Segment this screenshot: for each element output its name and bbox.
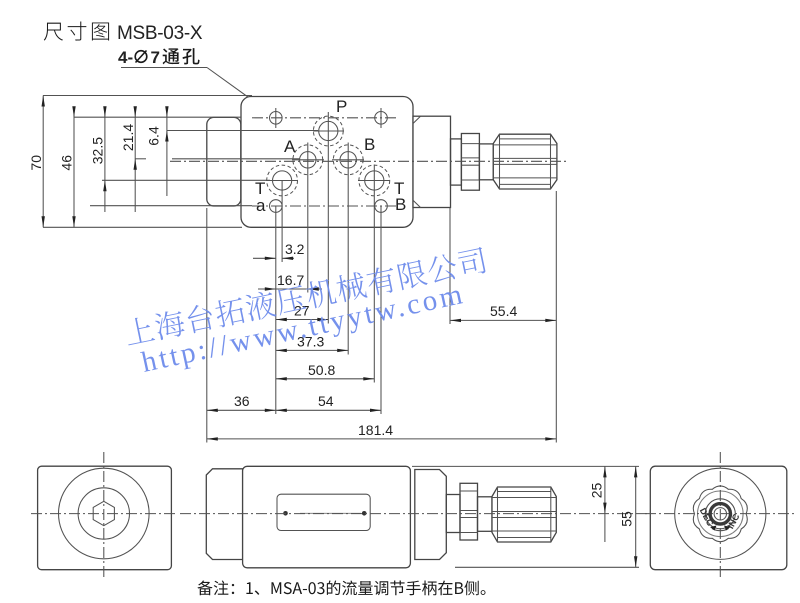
svg-text:36: 36: [234, 393, 250, 409]
svg-text:55: 55: [619, 511, 635, 527]
svg-text:MSB-03-X: MSB-03-X: [117, 23, 203, 44]
svg-text:181.4: 181.4: [358, 422, 393, 438]
svg-text:32.5: 32.5: [90, 137, 106, 164]
svg-text:54: 54: [318, 393, 334, 409]
svg-text:21.4: 21.4: [120, 124, 136, 151]
svg-text:7: 7: [151, 48, 160, 67]
svg-text:50.8: 50.8: [308, 362, 335, 378]
svg-text:70: 70: [28, 155, 44, 171]
svg-text:4-: 4-: [118, 48, 133, 67]
svg-text:3.2: 3.2: [285, 241, 305, 257]
svg-text:46: 46: [59, 155, 75, 171]
svg-text:55.4: 55.4: [490, 303, 517, 319]
svg-text:B: B: [395, 195, 406, 214]
svg-text:P: P: [336, 97, 347, 116]
svg-text:25: 25: [589, 483, 605, 499]
svg-text:B: B: [364, 135, 375, 154]
svg-text:6.4: 6.4: [146, 126, 162, 146]
svg-text:a: a: [256, 196, 266, 215]
svg-text:A: A: [284, 137, 296, 156]
